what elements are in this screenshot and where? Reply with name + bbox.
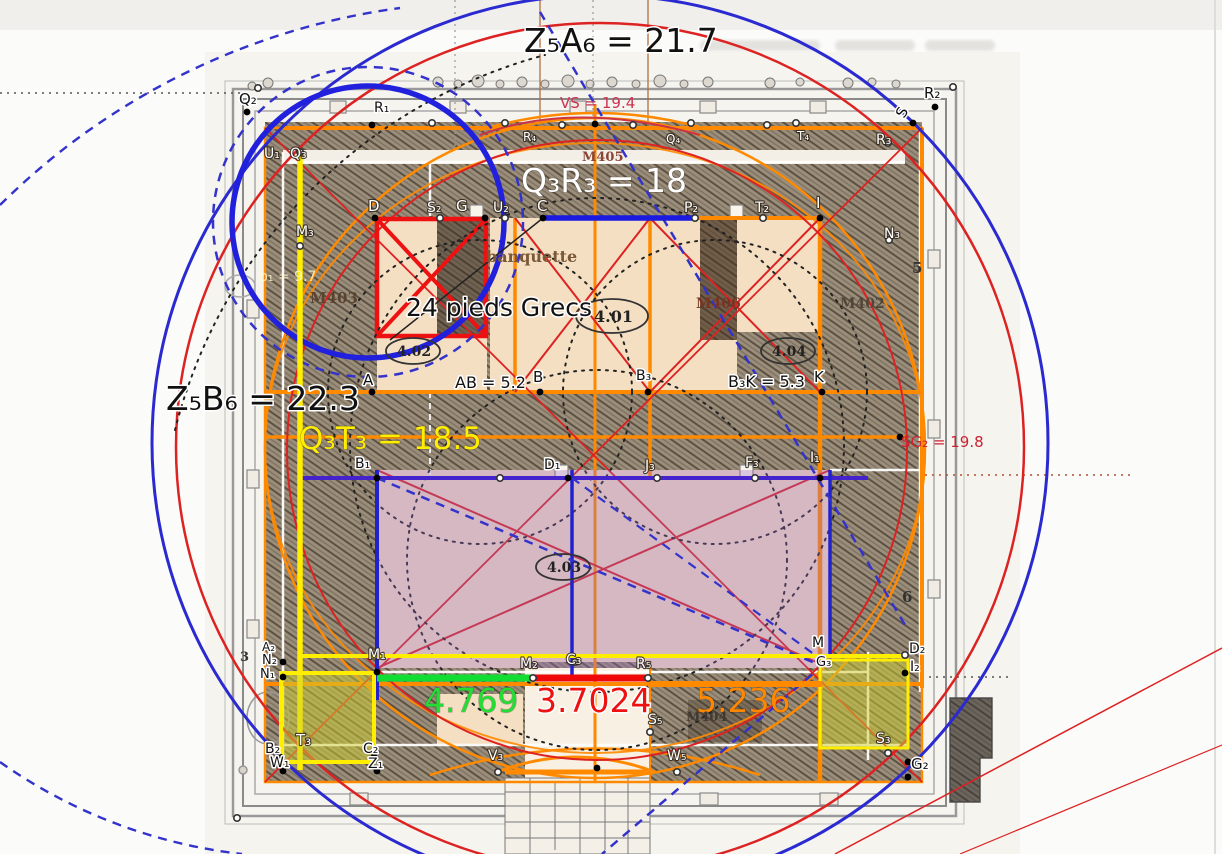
plan-label: 4.04 — [772, 344, 806, 360]
point-label: W₅ — [667, 748, 686, 764]
point-label: R₅ — [636, 656, 651, 672]
construction-point[interactable] — [482, 215, 489, 222]
point-label: A₂ — [262, 640, 275, 654]
point-label: G₃ — [816, 655, 831, 670]
construction-point[interactable] — [502, 120, 508, 126]
construction-point[interactable] — [594, 765, 601, 772]
measurement-label: 3.7024 — [536, 681, 651, 720]
point-label: N₁ — [260, 667, 275, 682]
measurement-label: 24 pieds Grecs — [406, 293, 592, 322]
construction-point[interactable] — [234, 815, 240, 821]
measurement-label-small: SG₂ = 19.8 — [901, 433, 984, 451]
point-label: V₃ — [488, 748, 503, 764]
construction-point[interactable] — [688, 120, 694, 126]
point-label: K — [814, 368, 825, 386]
construction-point[interactable] — [372, 215, 379, 222]
plan-label: 4.03 — [547, 560, 581, 576]
point-label: C — [537, 197, 547, 215]
construction-point[interactable] — [369, 389, 376, 396]
measurement-label-small: AB = 5.2 — [455, 373, 526, 392]
point-label: R₂ — [924, 84, 940, 102]
point-label: B₃ — [636, 368, 651, 384]
construction-point[interactable] — [374, 669, 381, 676]
construction-point[interactable] — [950, 84, 956, 90]
construction-point[interactable] — [819, 389, 826, 396]
point-label: T₂ — [754, 200, 769, 216]
construction-point[interactable] — [793, 120, 799, 126]
construction-point[interactable] — [280, 674, 287, 681]
construction-point[interactable] — [647, 729, 653, 735]
construction-point[interactable] — [540, 215, 547, 222]
point-label: M₁ — [368, 647, 386, 663]
point-label: R₄ — [523, 130, 536, 144]
point-label: B — [533, 368, 543, 386]
measurement-label: Z₅B₆ = 22.3 — [166, 379, 360, 418]
point-label: F₃ — [745, 455, 759, 471]
point-label: M₂ — [520, 656, 538, 672]
construction-point[interactable] — [910, 120, 917, 127]
plan-label: M405 — [582, 150, 624, 165]
construction-point[interactable] — [885, 750, 891, 756]
point-label: R₃ — [876, 132, 891, 148]
point-label: N₃ — [884, 226, 900, 242]
point-label: G — [456, 197, 468, 215]
point-label: W₁ — [270, 755, 289, 771]
point-label: J₃ — [644, 458, 655, 474]
point-label: S₃ — [876, 731, 891, 747]
geometry-analysis-canvas: Z₅A₆ = 21.7Q₃R₃ = 18Z₅B₆ = 22.3Q₃T₃ = 18… — [0, 0, 1222, 854]
construction-point[interactable] — [932, 104, 939, 111]
construction-point[interactable] — [537, 389, 544, 396]
measurement-label-small: B₃K = 5.3 — [728, 372, 805, 391]
point-label: I₂ — [910, 659, 920, 675]
point-label: I₁ — [810, 450, 820, 466]
construction-point[interactable] — [280, 659, 287, 666]
measurement-label: Q₃R₃ = 18 — [521, 161, 687, 200]
point-label: M — [812, 635, 824, 651]
point-label: S₂ — [427, 200, 442, 216]
point-label: T₄ — [796, 129, 809, 143]
point-label: D — [368, 197, 380, 215]
point-label: S₅ — [648, 712, 663, 728]
plan-label: 3 — [240, 650, 249, 665]
construction-point[interactable] — [764, 122, 770, 128]
purple-rectangle — [300, 470, 868, 700]
point-label: U₂ — [493, 200, 509, 216]
point-label: G₂ — [911, 755, 929, 773]
point-label: R₁ — [374, 100, 389, 116]
construction-point[interactable] — [244, 109, 251, 116]
construction-point[interactable] — [429, 120, 435, 126]
point-label: Q₂ — [239, 90, 257, 108]
construction-point[interactable] — [902, 652, 908, 658]
measurement-label: 4.769 — [424, 681, 518, 720]
construction-point[interactable] — [565, 475, 572, 482]
staircase — [505, 778, 650, 854]
point-label: C₃ — [566, 652, 581, 668]
point-label: N₂ — [262, 653, 277, 668]
measurement-label: Q₃T₃ = 18.5 — [299, 421, 482, 457]
plan-label: M403 — [310, 289, 358, 307]
plan-label: banquette — [486, 247, 577, 266]
construction-point[interactable] — [817, 475, 824, 482]
point-label: C₂ — [363, 741, 378, 757]
point-label: T₃ — [295, 731, 311, 749]
measurement-label-small: b₁ = 9.7 — [259, 269, 316, 285]
construction-point[interactable] — [752, 475, 758, 481]
construction-point[interactable] — [559, 122, 565, 128]
point-label: A — [363, 371, 374, 389]
point-label: Q₄ — [666, 132, 680, 146]
construction-point[interactable] — [374, 475, 381, 482]
point-label: D₁ — [544, 457, 560, 473]
construction-point[interactable] — [674, 769, 680, 775]
point-label: I — [816, 194, 820, 212]
construction-drawing: Z₅A₆ = 21.7Q₃R₃ = 18Z₅B₆ = 22.3Q₃T₃ = 18… — [0, 0, 1222, 854]
point-label: P₂ — [684, 200, 698, 216]
construction-point[interactable] — [495, 769, 501, 775]
construction-point[interactable] — [902, 670, 909, 677]
construction-point[interactable] — [497, 475, 503, 481]
measurement-label-small: VS = 19.4 — [560, 94, 635, 112]
point-label: M₃ — [296, 224, 314, 240]
construction-point[interactable] — [817, 215, 824, 222]
point-label: U₁ — [264, 146, 280, 162]
measurement-label: Z₅A₆ = 21.7 — [524, 21, 718, 60]
point-label: D₂ — [909, 641, 925, 657]
point-label: B₁ — [355, 456, 370, 472]
construction-point[interactable] — [297, 243, 303, 249]
point-label: Z₁ — [368, 756, 383, 772]
plan-label: M406 — [696, 296, 741, 312]
plan-label: 4.01 — [594, 307, 633, 326]
construction-point[interactable] — [645, 389, 652, 396]
construction-point[interactable] — [630, 122, 636, 128]
plan-label: 6 — [902, 588, 912, 606]
plan-label: M402 — [840, 296, 885, 312]
construction-point[interactable] — [905, 774, 912, 781]
plan-label: 4.02 — [397, 344, 431, 360]
plan-label: 5 — [912, 259, 922, 277]
construction-point[interactable] — [654, 475, 660, 481]
point-label: Q₃ — [290, 146, 307, 162]
construction-point[interactable] — [369, 122, 376, 129]
construction-point[interactable] — [592, 121, 599, 128]
plan-label: M404 — [686, 710, 728, 725]
